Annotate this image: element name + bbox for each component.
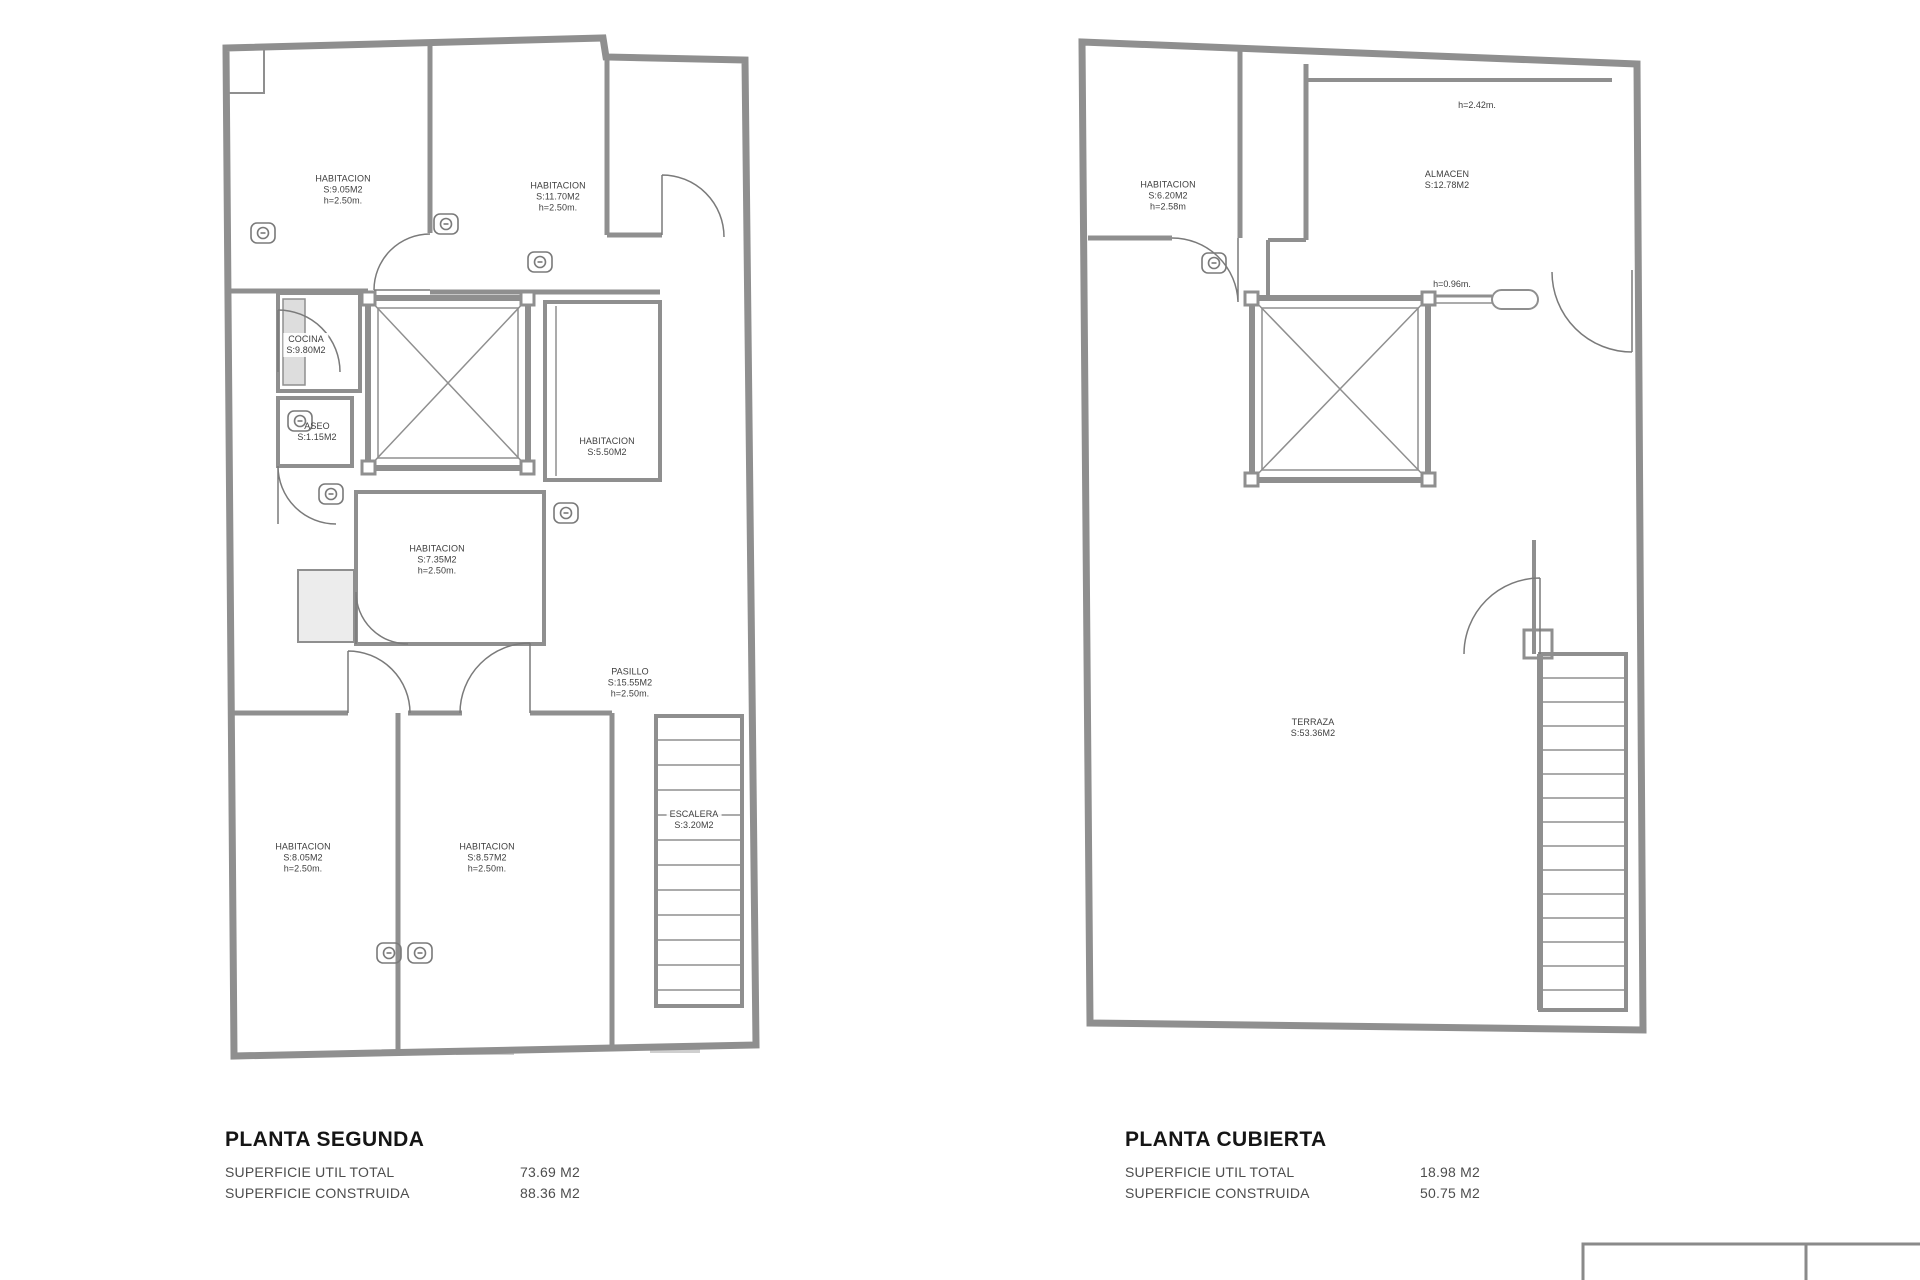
plan-segunda-drawing <box>226 38 756 1056</box>
room-name: TERRAZA <box>1291 717 1335 728</box>
room-label-habitacion-735: HABITACION S:7.35M2 h=2.50m. <box>409 544 464 577</box>
room-name: HABITACION <box>315 174 370 185</box>
room-label-habitacion-620: HABITACION S:6.20M2 h=2.58m <box>1140 180 1195 213</box>
stats-value: 88.36 M2 <box>520 1185 640 1201</box>
room-height: h=2.50m. <box>409 566 464 577</box>
room-label-almacen: ALMACEN S:12.78M2 <box>1425 169 1469 191</box>
room-area: S:7.35M2 <box>409 555 464 566</box>
room-name: HABITACION <box>579 436 634 447</box>
room-label-habitacion-550: HABITACION S:5.50M2 <box>579 436 634 458</box>
segunda-title-block: PLANTA SEGUNDA SUPERFICIE UTIL TOTAL 73.… <box>225 1128 705 1201</box>
plan-title-cubierta: PLANTA CUBIERTA <box>1125 1128 1605 1152</box>
room-name: ESCALERA <box>670 809 719 820</box>
room-label-habitacion-905: HABITACION S:9.05M2 h=2.50m. <box>315 174 370 207</box>
sheet-frame <box>1583 1244 1920 1280</box>
stats-value: 50.75 M2 <box>1420 1185 1540 1201</box>
room-area: S:12.78M2 <box>1425 180 1469 191</box>
room-name: HABITACION <box>459 842 514 853</box>
closet-block <box>298 570 354 642</box>
height-annotation-096: h=0.96m. <box>1433 279 1471 289</box>
room-area: S:6.20M2 <box>1140 191 1195 202</box>
room-name: HABITACION <box>1140 180 1195 191</box>
room-label-terraza: TERRAZA S:53.36M2 <box>1291 717 1335 739</box>
stats-row: SUPERFICIE UTIL TOTAL 18.98 M2 <box>1125 1164 1605 1180</box>
outer-wall <box>226 38 756 1056</box>
stats-value: 73.69 M2 <box>520 1164 640 1180</box>
room-area: S:9.05M2 <box>315 185 370 196</box>
stats-label: SUPERFICIE CONSTRUIDA <box>1125 1185 1420 1201</box>
room-name: COCINA <box>286 334 325 345</box>
floorplan-canvas <box>0 0 1920 1280</box>
room-height: h=2.50m. <box>608 689 652 700</box>
room-height: h=2.50m. <box>530 203 585 214</box>
stats-value: 18.98 M2 <box>1420 1164 1540 1180</box>
room-label-habitacion-805: HABITACION S:8.05M2 h=2.50m. <box>275 842 330 875</box>
height-annotation-242: h=2.42m. <box>1458 100 1496 110</box>
room-area: S:8.05M2 <box>275 853 330 864</box>
cubierta-title-block: PLANTA CUBIERTA SUPERFICIE UTIL TOTAL 18… <box>1125 1128 1605 1201</box>
room-area: S:53.36M2 <box>1291 728 1335 739</box>
room-label-habitacion-1170: HABITACION S:11.70M2 h=2.50m. <box>530 181 585 214</box>
room-height: h=2.50m. <box>315 196 370 207</box>
room-name: HABITACION <box>409 544 464 555</box>
room-label-habitacion-857: HABITACION S:8.57M2 h=2.50m. <box>459 842 514 875</box>
room-label-cocina: COCINA S:9.80M2 <box>283 333 328 357</box>
stats-label: SUPERFICIE CONSTRUIDA <box>225 1185 520 1201</box>
room-height: h=2.58m <box>1140 202 1195 213</box>
stats-row: SUPERFICIE CONSTRUIDA 50.75 M2 <box>1125 1185 1605 1201</box>
plan-title-segunda: PLANTA SEGUNDA <box>225 1128 705 1152</box>
room-height: h=2.50m. <box>459 864 514 875</box>
room-label-escalera: ESCALERA S:3.20M2 <box>667 808 722 832</box>
stats-row: SUPERFICIE CONSTRUIDA 88.36 M2 <box>225 1185 705 1201</box>
room-name: ASEO <box>297 421 336 432</box>
room-label-aseo: ASEO S:1.15M2 <box>297 421 336 443</box>
room-label-pasillo: PASILLO S:15.55M2 h=2.50m. <box>608 667 652 700</box>
room-area: S:1.15M2 <box>297 432 336 443</box>
room-height: h=2.50m. <box>275 864 330 875</box>
room-area: S:5.50M2 <box>579 447 634 458</box>
room-area: S:9.80M2 <box>286 345 325 356</box>
room-area: S:3.20M2 <box>670 820 719 831</box>
room-name: ALMACEN <box>1425 169 1469 180</box>
room-name: PASILLO <box>608 667 652 678</box>
room-name: HABITACION <box>530 181 585 192</box>
stats-label: SUPERFICIE UTIL TOTAL <box>225 1164 520 1180</box>
stats-row: SUPERFICIE UTIL TOTAL 73.69 M2 <box>225 1164 705 1180</box>
room-area: S:11.70M2 <box>530 192 585 203</box>
room-area: S:15.55M2 <box>608 678 652 689</box>
room-area: S:8.57M2 <box>459 853 514 864</box>
stats-label: SUPERFICIE UTIL TOTAL <box>1125 1164 1420 1180</box>
room-name: HABITACION <box>275 842 330 853</box>
